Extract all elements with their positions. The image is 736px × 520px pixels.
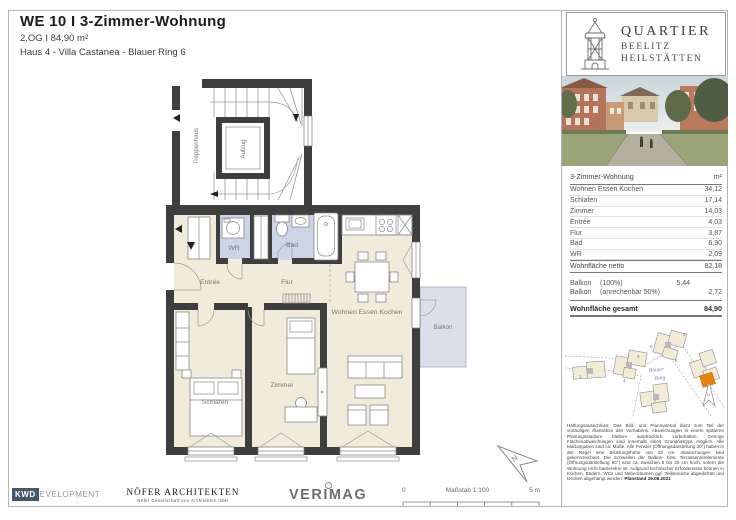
- washer: [222, 218, 244, 238]
- disclaimer-text: Haftungsausschluss: Das Bild- und Planma…: [567, 423, 724, 482]
- sink: [292, 215, 309, 227]
- north-arrow-icon: N: [494, 438, 542, 490]
- plan-sheet: WE 10 I 3-Zimmer-Wohnung 2.OG I 84,90 m²…: [0, 0, 736, 520]
- label-aufzug: Aufzug: [240, 139, 247, 159]
- label-treppenhaus: Treppenhaus: [193, 128, 200, 164]
- svg-text:5: 5: [650, 344, 653, 349]
- title-block: WE 10 I 3-Zimmer-Wohnung 2.OG I 84,90 m²…: [20, 13, 226, 58]
- scale-bar: 0 Maßstab 1:100 5 m: [402, 487, 540, 512]
- label-wohnen: Wohnen Essen Kochen: [332, 309, 403, 316]
- label-bad: Bad: [286, 242, 298, 249]
- balkon-row: Balkon(anrechenbar 50%) 2,72: [570, 288, 722, 297]
- page-title: WE 10 I 3-Zimmer-Wohnung: [20, 13, 226, 30]
- bathtub: [314, 213, 338, 260]
- area-table-header: 3-Zimmer-Wohnung m²: [570, 171, 722, 185]
- label-wr: WR: [228, 245, 239, 252]
- address-line: Haus 4 - Villa Castanea - Blauer Ring 6: [20, 47, 226, 58]
- svg-text:4: 4: [623, 378, 626, 383]
- table-row: Schlafen17,14: [570, 196, 722, 207]
- netto-row: Wohnfläche netto82,18: [570, 260, 722, 273]
- area-table: 3-Zimmer-Wohnung m² Wohnen Essen Kochen3…: [570, 171, 722, 317]
- water-tower-icon: [577, 17, 613, 71]
- svg-text:N: N: [707, 392, 710, 397]
- street-label-line1: Blauer: [649, 366, 665, 374]
- label-balkon: Balkon: [434, 324, 453, 331]
- planstand-date: Planstand 19.08.2021: [624, 476, 670, 481]
- noefer-logo: NÖFER ARCHITEKTEN Nöfer Gesellschaft von…: [122, 487, 244, 503]
- scale-labels: 0 Maßstab 1:100 5 m: [402, 487, 540, 494]
- table-row: Entrée4,03: [570, 217, 722, 228]
- label-schlafen: Schlafen: [202, 399, 229, 406]
- label-zimmer: Zimmer: [270, 382, 294, 389]
- verimag-ring-icon: [325, 482, 332, 489]
- table-row: Flur3,87: [570, 228, 722, 239]
- project-rendering: [562, 76, 728, 166]
- scale-ruler: [402, 499, 540, 507]
- floor-size-subtitle: 2.OG I 84,90 m²: [20, 33, 226, 44]
- site-plan: 1 2 3 4 5 6 Blauer Ring N: [563, 320, 727, 420]
- kwd-logo: KWD EVELOPMENT: [12, 488, 100, 501]
- gesamt-row: Wohnfläche gesamt84,90: [570, 300, 722, 317]
- toilet: [275, 215, 289, 236]
- balkon-row: Balkon(100%) 5,44: [570, 278, 722, 287]
- table-row: WR2,09: [570, 250, 722, 261]
- label-entree: Entrée: [200, 279, 220, 286]
- brand-logo-box: QUARTIER BEELITZ HEILSTÄTTEN: [566, 12, 726, 76]
- table-row: Wohnen Essen Kochen34,12: [570, 185, 722, 196]
- floorplan-drawing: Treppenhaus Aufzug WR Bad Entrée Flur Wo…: [160, 76, 490, 468]
- verimag-logo: VERIMAG: [289, 486, 367, 504]
- brand-name: QUARTIER BEELITZ HEILSTÄTTEN: [621, 24, 711, 64]
- street-label-line2: Ring: [654, 375, 666, 382]
- kitchen-counter: [342, 215, 412, 235]
- label-flur: Flur: [281, 279, 293, 286]
- table-row: Zimmer14,03: [570, 207, 722, 218]
- table-row: Bad6,90: [570, 239, 722, 250]
- svg-text:6: 6: [675, 358, 678, 363]
